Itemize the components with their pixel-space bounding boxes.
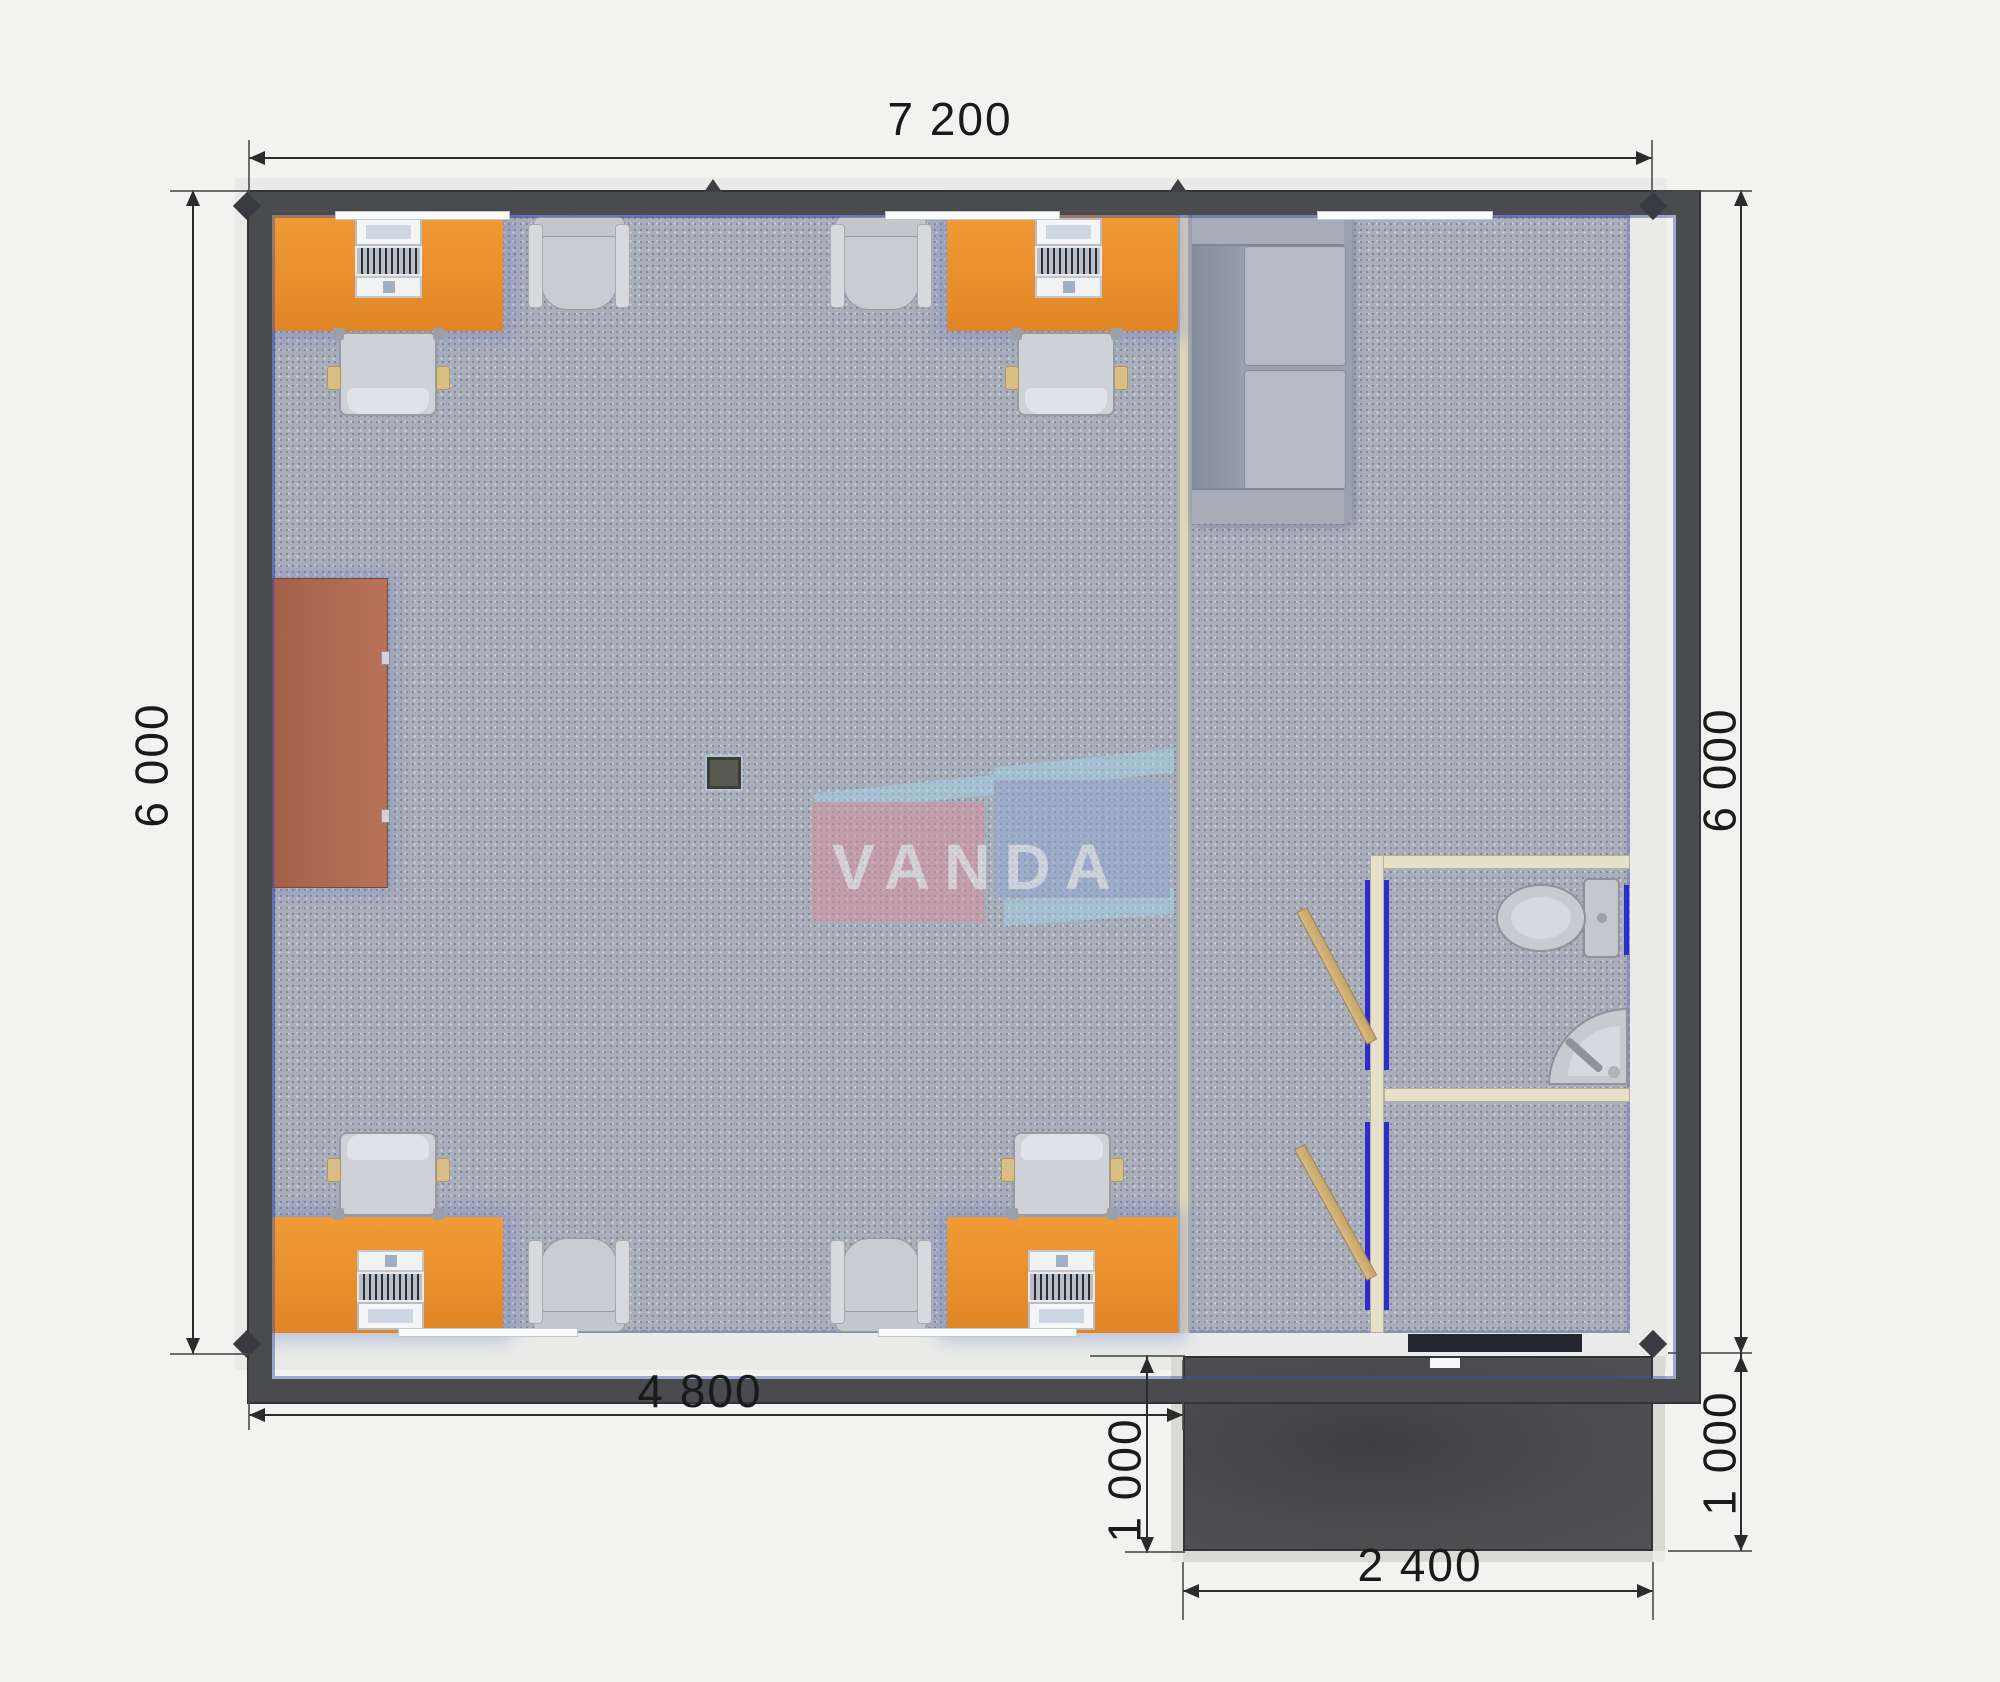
extension-line: [248, 1360, 250, 1430]
module-joint-marker: [704, 179, 722, 192]
dimension-line: [1183, 1590, 1653, 1592]
window: [398, 1328, 578, 1337]
dimension-arrow: [1734, 1535, 1748, 1551]
dimension-arrow: [1636, 151, 1652, 165]
dimension-arrow: [249, 1408, 265, 1422]
dimension-label-porch-depth-right: 1 000: [1630, 1368, 1810, 1538]
dimension-arrow: [1637, 1584, 1653, 1598]
dimension-label-porch-depth-left: 1 000: [1035, 1395, 1215, 1565]
window: [1317, 211, 1493, 220]
extension-line: [1652, 1562, 1654, 1620]
extension-line: [170, 190, 250, 192]
entrance-door: [1408, 1334, 1582, 1352]
dimension-line: [1740, 190, 1742, 1353]
extension-line: [1651, 140, 1653, 194]
dimension-label-office-width: 4 800: [580, 1364, 820, 1418]
dimension-arrow: [249, 151, 265, 165]
dimension-arrow: [1183, 1584, 1199, 1598]
dimension-arrow: [186, 190, 200, 206]
extension-line: [1668, 1550, 1752, 1552]
dimension-line: [1740, 1353, 1742, 1551]
dimension-arrow: [1140, 1357, 1154, 1373]
dimension-label-top-width: 7 200: [830, 92, 1070, 146]
window: [878, 1328, 1077, 1337]
dimension-label-right-height: 6 000: [1630, 685, 1810, 855]
logo-watermark: VANDA: [808, 756, 1176, 926]
dimension-line: [1146, 1355, 1148, 1553]
extension-line: [1656, 190, 1752, 192]
brand-name: VANDA: [832, 830, 1177, 904]
window: [335, 211, 510, 220]
window: [885, 211, 1060, 220]
dimension-arrow: [1734, 1356, 1748, 1372]
floor-plan-canvas: VANDA 7 200 6 000 6 000 1 000 4 800 1 00…: [0, 0, 2000, 1682]
dimension-label-porch-width: 2 400: [1300, 1538, 1540, 1592]
extension-line: [170, 1353, 250, 1355]
dimension-label-left-height: 6 000: [62, 680, 242, 850]
dimension-line: [192, 190, 194, 1354]
module-joint-marker: [1169, 179, 1187, 192]
dimension-arrow: [1734, 1337, 1748, 1353]
extension-line: [1182, 1562, 1184, 1620]
dimension-arrow: [186, 1338, 200, 1354]
extension-line: [248, 140, 250, 194]
extension-line: [1090, 1355, 1185, 1357]
dimension-line: [249, 157, 1652, 159]
dimension-arrow: [1734, 190, 1748, 206]
extension-line: [1125, 1551, 1185, 1553]
